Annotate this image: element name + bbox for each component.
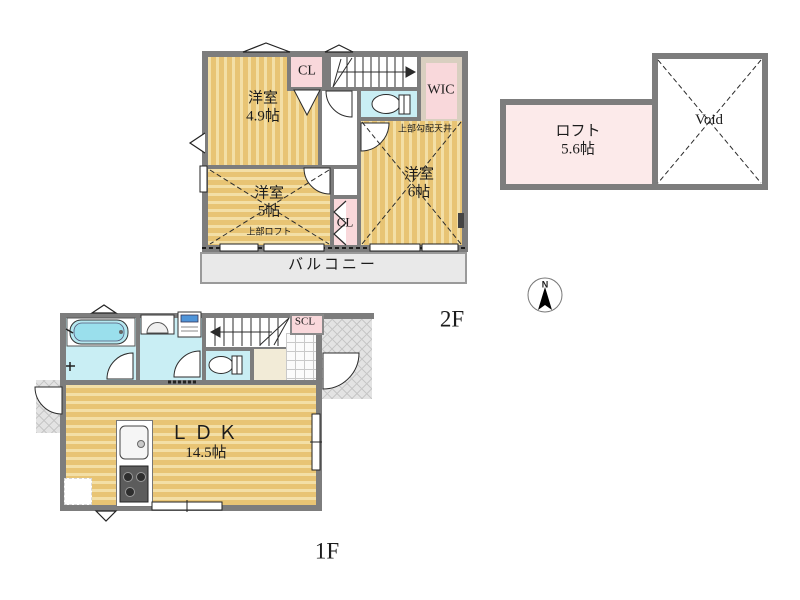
- room-size: 14.5帖: [170, 445, 242, 463]
- room-6-note: 上部勾配天井: [398, 124, 452, 135]
- room-name: ＬＤＫ: [170, 423, 242, 445]
- room-6-label: 洋室 6帖: [404, 166, 434, 201]
- 2f-hallway-lower: [334, 169, 357, 195]
- 1f-stairs-area: [206, 318, 290, 347]
- awning-window-icon: [92, 305, 116, 313]
- loft-label: ロフト 5.6帖: [555, 123, 600, 158]
- 2f-stairs-area: [331, 57, 417, 87]
- 1f-floor-storage: [64, 478, 92, 505]
- room-4-9-label: 洋室 4.9帖: [246, 90, 280, 125]
- room-size: 4.9帖: [246, 108, 280, 126]
- floor2-label: 2F: [440, 305, 464, 332]
- 1f-toilet-room: [206, 351, 250, 380]
- room-name: 洋室: [404, 166, 434, 184]
- 1f-left-terrace-tile: [36, 380, 62, 433]
- cl-bottom-label: CL: [337, 214, 354, 229]
- room-name: ロフト: [555, 123, 600, 141]
- room-name: 洋室: [254, 185, 284, 203]
- 1f-entry-porch-tile: [322, 313, 372, 399]
- room-size: 6帖: [404, 184, 434, 202]
- 2f-hallway: [322, 91, 357, 165]
- 1f-porch-top-wall: [322, 313, 374, 319]
- void-label: Void: [695, 112, 723, 130]
- 2f-toilet-room: [361, 91, 417, 117]
- compass-north-label: N: [542, 280, 549, 291]
- 1f-kitchen-island: [116, 420, 153, 507]
- scl-label: SCL: [295, 316, 315, 329]
- room-name: 洋室: [246, 90, 280, 108]
- room-size: 5帖: [254, 203, 284, 221]
- 1f-hall: [254, 349, 286, 380]
- room-5-label: 洋室 5帖: [254, 185, 284, 220]
- cl-top-label: CL: [298, 64, 316, 81]
- 1f-entry-tile: [286, 333, 316, 380]
- room-size: 5.6帖: [555, 141, 600, 159]
- 1f-washroom: [140, 318, 202, 380]
- wic-label: WIC: [427, 83, 454, 100]
- ldk-label: ＬＤＫ 14.5帖: [170, 423, 242, 463]
- floor-plan: 洋室 4.9帖 CL WIC 上部勾配天井 洋室 6帖 洋室 5帖 上部ロフト …: [0, 0, 800, 600]
- 1f-bathroom: [66, 318, 136, 380]
- room-5-note: 上部ロフト: [246, 227, 291, 238]
- balcony-label: バルコニー: [288, 257, 378, 275]
- floor1-label: 1F: [315, 537, 339, 564]
- awning-window-icon: [96, 511, 116, 521]
